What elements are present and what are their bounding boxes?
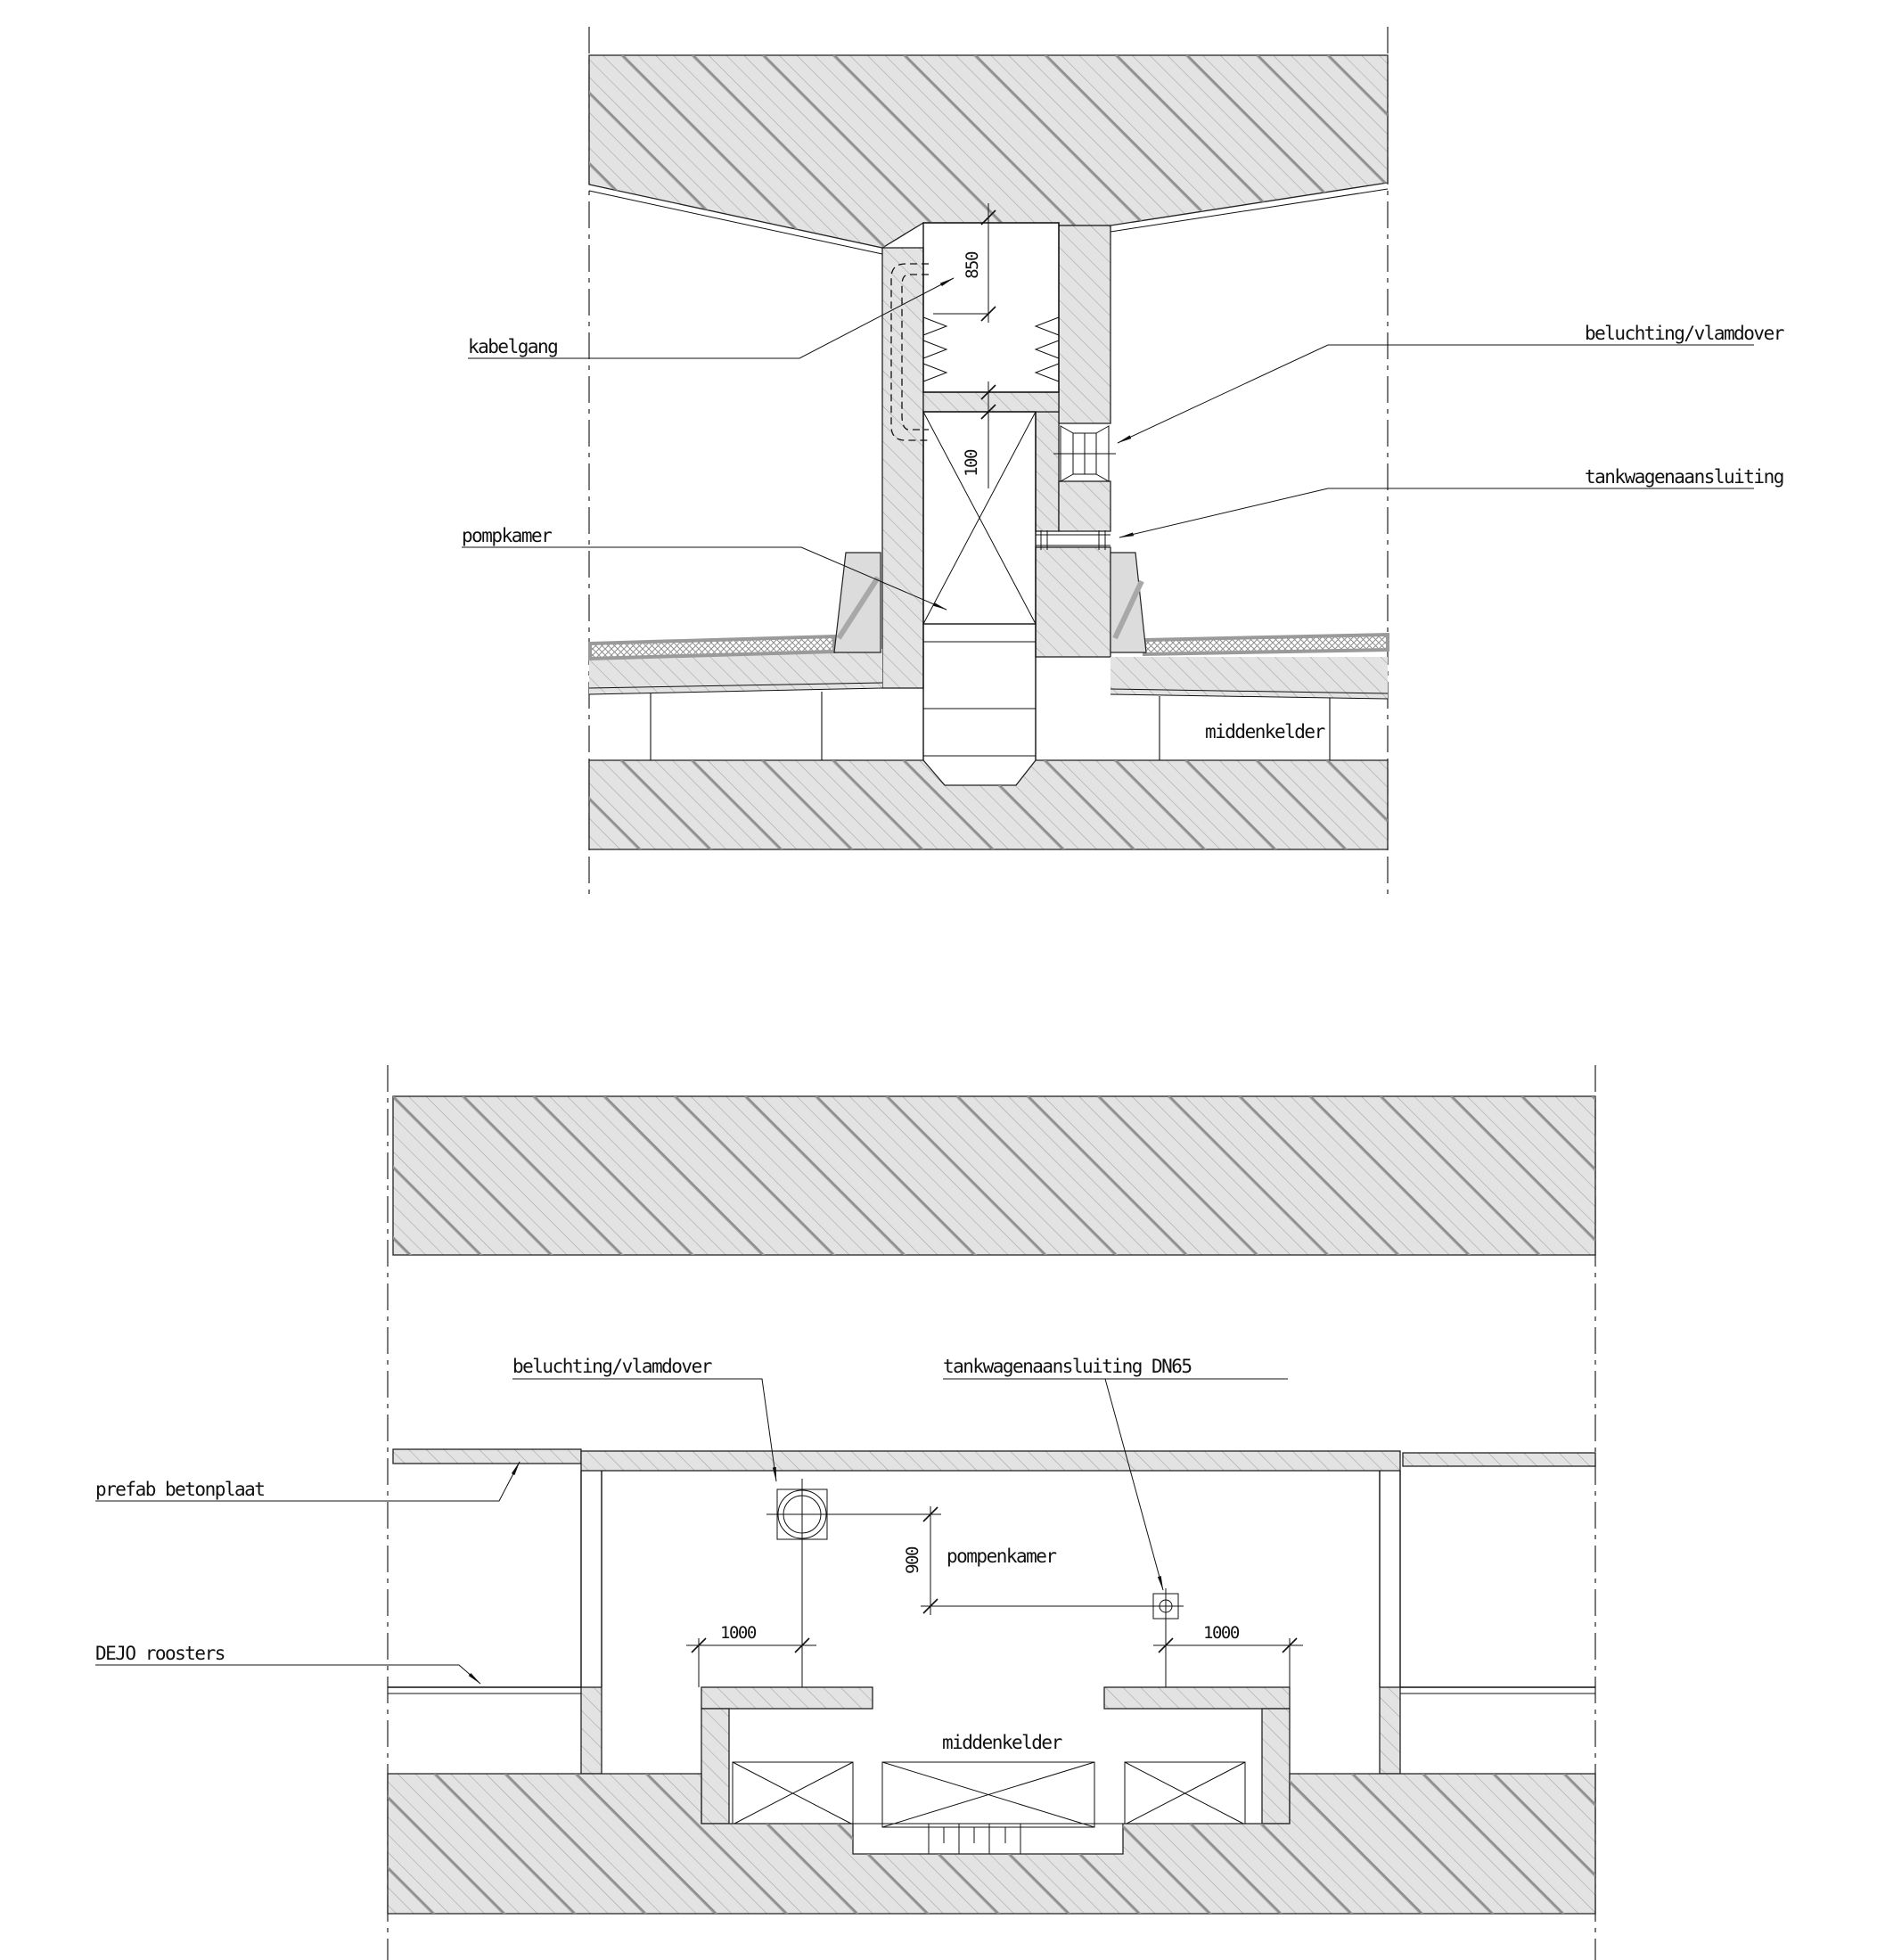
- shaft-wall-right-lower: [1036, 547, 1111, 657]
- dim-900-text: 900: [903, 1546, 922, 1574]
- kabelgang-niche: [923, 223, 1059, 392]
- section-view: 850 100 kabelgang pompkamer beluchting/v…: [462, 27, 1784, 894]
- insulation-strip-right: [1144, 635, 1388, 654]
- ground-slab-texture: [589, 760, 1388, 849]
- shaft-wall-left: [882, 248, 923, 688]
- pump-shaft-lower: [923, 624, 1036, 785]
- cad-drawing: 850 100 kabelgang pompkamer beluchting/v…: [0, 0, 1885, 1960]
- label-beluchting-plan: beluchting/vlamdover: [512, 1356, 712, 1377]
- dim-1000-right: 1000: [1153, 1623, 1303, 1687]
- label-middenkelder-plan: middenkelder: [942, 1732, 1062, 1753]
- leader-dejo: [95, 1665, 480, 1684]
- label-pompkamer: pompkamer: [462, 525, 552, 546]
- label-tankwagen-plan: tankwagenaansluiting DN65: [943, 1356, 1192, 1377]
- label-pompenkamer: pompenkamer: [947, 1546, 1056, 1567]
- dejo-rooster-strips: [388, 1687, 1595, 1693]
- dim-100-text: 100: [962, 449, 981, 477]
- leader-beluchting-section: [1118, 345, 1754, 443]
- kabelgang-pipe-chevrons: [923, 317, 1059, 381]
- tankwagen-symbol: [1148, 1588, 1184, 1687]
- leader-tankwagen-plan: [1105, 1379, 1163, 1590]
- plan-view: 900 1000 1000: [95, 1065, 1595, 1960]
- dim-1000-left-text: 1000: [720, 1623, 757, 1643]
- beluchting-symbol: [766, 1479, 941, 1687]
- pompkamer-box: [923, 412, 1036, 624]
- label-tankwagen-section: tankwagenaansluiting: [1585, 466, 1783, 488]
- ground-slab-plan-texture: [388, 1774, 1595, 1914]
- shaft-wall-right-strip: [1036, 412, 1059, 531]
- label-middenkelder-section: middenkelder: [1205, 721, 1325, 742]
- leader-tankwagen-section: [1119, 488, 1754, 537]
- dim-1000-left: 1000: [686, 1623, 816, 1687]
- dim-850-text: 850: [963, 251, 982, 279]
- label-dejo: DEJO roosters: [95, 1643, 225, 1664]
- prefab-plate-right: [1403, 1453, 1595, 1466]
- prefab-plate-main: [581, 1451, 1400, 1471]
- plan-top-wall-texture: [393, 1096, 1595, 1255]
- dim-1000-right-text: 1000: [1203, 1623, 1240, 1643]
- shaft-wall-right-mid: [1059, 481, 1111, 531]
- middenkelder-recess: [701, 1687, 1290, 1824]
- label-kabelgang: kabelgang: [468, 336, 557, 357]
- drawing-sheet: 850 100 kabelgang pompkamer beluchting/v…: [0, 0, 1885, 1960]
- label-prefab: prefab betonplaat: [95, 1479, 264, 1500]
- vent-spool: [1053, 426, 1116, 481]
- label-beluchting-section: beluchting/vlamdover: [1585, 323, 1784, 344]
- sump-strip: [853, 1824, 1123, 1854]
- prefab-plate-left: [393, 1449, 581, 1464]
- middenkelder-x-boxes: [733, 1762, 1245, 1827]
- shaft-wall-right-upper: [1059, 226, 1111, 423]
